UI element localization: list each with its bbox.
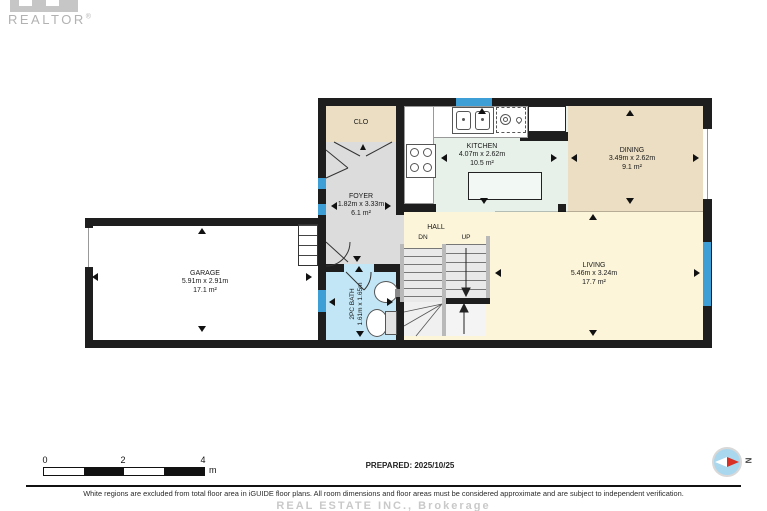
sink-drain-icon <box>462 118 465 121</box>
kitchen-partial-wall <box>396 204 436 212</box>
compass-needle-tail-icon <box>715 457 727 467</box>
kitchen-island <box>468 172 542 200</box>
living-window <box>703 242 711 306</box>
stair-winder-area <box>404 302 442 336</box>
scale-bar-segments <box>43 467 205 476</box>
realtor-wordmark: REALTOR <box>8 12 86 27</box>
dishwasher-dial-icon <box>503 117 508 122</box>
room-name: 2PC BATH <box>349 283 357 326</box>
room-name: CLO <box>354 119 368 127</box>
garage-entry-steps <box>298 224 318 266</box>
kitchen-label: KITCHEN 4.07m x 2.62m 10.5 m² <box>459 143 505 168</box>
kitchen-window <box>456 98 492 106</box>
scale-bar: 0 2 4 m <box>43 453 233 479</box>
foyer-label: FOYER 1.82m x 3.33m 6.1 m² <box>338 193 384 218</box>
living-label: LIVING 5.46m x 3.24m 17.7 m² <box>571 262 617 287</box>
bath-window <box>318 290 326 312</box>
room-name: HALL <box>427 224 445 232</box>
sink-drain-icon <box>481 118 484 121</box>
room-dims: 5.46m x 3.24m <box>571 270 617 278</box>
bath-sink <box>374 281 398 303</box>
bath-door-opening <box>344 264 374 272</box>
realtor-logo-icon <box>10 0 78 12</box>
scale-tick-2: 2 <box>116 455 130 465</box>
room-name: LIVING <box>571 262 617 270</box>
scale-segment <box>124 468 164 475</box>
registered-trademark: ® <box>86 14 91 21</box>
room-area: 9.1 m² <box>609 164 655 172</box>
stairs-up-label: UP <box>461 234 470 242</box>
garage-label: GARAGE 5.91m x 2.91m 17.1 m² <box>182 270 228 295</box>
toilet-tank <box>385 311 397 335</box>
foyer-window-upper <box>318 178 326 189</box>
scale-segment <box>44 468 84 475</box>
compass-north-label: N <box>743 458 752 464</box>
stove-burner-icon <box>410 148 419 157</box>
compass-needle-north-icon <box>727 457 739 467</box>
door-glass-line <box>707 129 708 199</box>
kitchen-sink <box>452 107 494 134</box>
room-dims: 1.61m x 1.65m <box>357 283 365 326</box>
room-dims: 4.07m x 2.62m <box>459 151 505 159</box>
room-area: 10.5 m² <box>459 160 505 168</box>
fridge <box>528 106 566 132</box>
logo-notch <box>46 0 59 6</box>
scale-segment <box>164 468 204 475</box>
room-name: DINING <box>609 147 655 155</box>
stairs-up-run <box>446 244 486 298</box>
compass-icon <box>712 447 742 477</box>
bath-label: 2PC BATH 1.61m x 1.65m <box>349 283 365 326</box>
room-dims: 1.82m x 3.33m <box>338 201 384 209</box>
room-area: 17.1 m² <box>182 287 228 295</box>
hall-label: HALL <box>427 224 445 232</box>
water-drop-icon <box>515 116 523 124</box>
room-dims: 5.91m x 2.91m <box>182 278 228 286</box>
room-name: KITCHEN <box>459 143 505 151</box>
logo-notch <box>19 0 32 6</box>
brokerage-watermark: REAL ESTATE INC., Brokerage <box>0 500 767 511</box>
room-name: GARAGE <box>182 270 228 278</box>
room-name: FOYER <box>338 193 384 201</box>
prepared-date: PREPARED: 2025/10/25 <box>340 461 480 470</box>
disclaimer-text: White regions are excluded from total fl… <box>0 489 767 498</box>
room-dims: 3.49m x 2.62m <box>609 155 655 163</box>
door-glass-line <box>88 228 89 267</box>
room-area: 17.7 m² <box>571 279 617 287</box>
stove-burner-icon <box>410 163 419 172</box>
foyer-window-lower <box>318 204 326 215</box>
stair-rail <box>486 236 490 302</box>
dining-patio-door <box>703 128 712 200</box>
room-area: 6.1 m² <box>338 210 384 218</box>
stove <box>406 144 436 178</box>
stove-burner-icon <box>423 163 432 172</box>
scale-segment <box>84 468 124 475</box>
garage-side-door <box>85 227 93 268</box>
dining-living-boundary <box>495 211 703 212</box>
stairs-dn-label: DN <box>418 234 427 242</box>
stair-lower-landing <box>446 304 486 336</box>
realtor-logo-text: REALTOR® <box>8 12 91 27</box>
dishwasher <box>496 107 526 133</box>
scale-tick-4: 4 <box>196 455 210 465</box>
dining-label: DINING 3.49m x 2.62m 9.1 m² <box>609 147 655 172</box>
closet-label: CLO <box>354 119 368 127</box>
stove-burner-icon <box>423 148 432 157</box>
footer-divider <box>26 485 741 487</box>
scale-unit: m <box>209 465 217 475</box>
floorplan-page: REALTOR® <box>0 0 767 511</box>
scale-tick-0: 0 <box>38 455 52 465</box>
stairs-down-run <box>404 248 442 302</box>
